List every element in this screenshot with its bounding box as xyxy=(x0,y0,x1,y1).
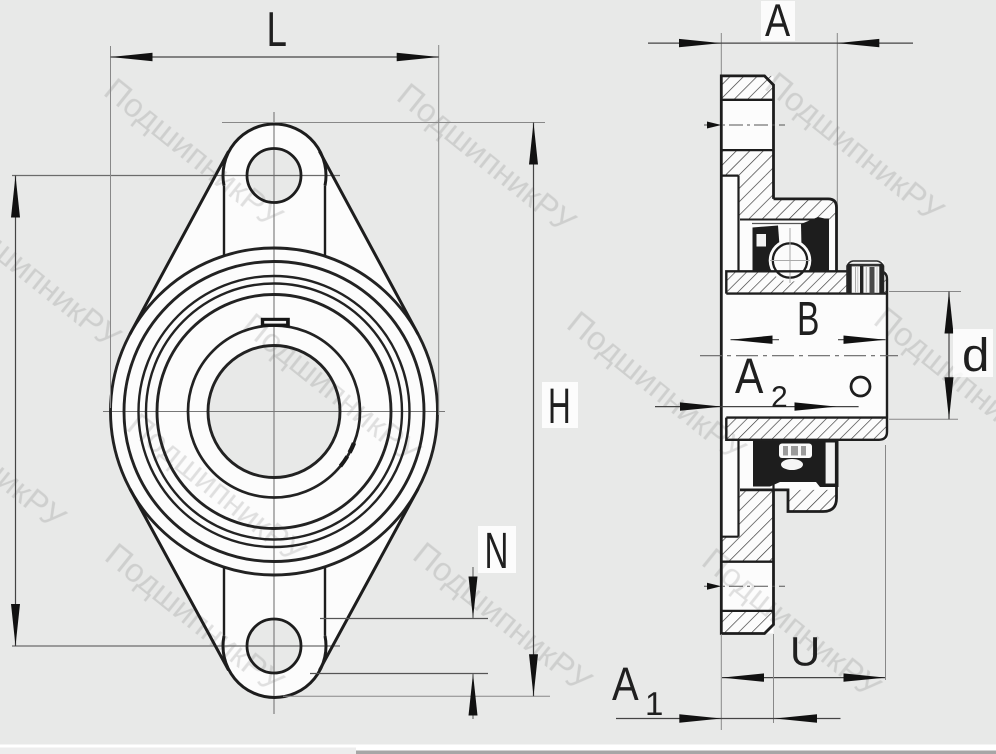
svg-text:2: 2 xyxy=(771,381,788,414)
svg-text:A: A xyxy=(612,657,639,710)
svg-text:A: A xyxy=(765,0,790,46)
svg-text:U: U xyxy=(790,629,820,675)
svg-text:d: d xyxy=(962,328,989,381)
svg-text:A: A xyxy=(735,348,764,404)
svg-text:B: B xyxy=(797,293,819,346)
svg-text:1: 1 xyxy=(645,685,663,722)
svg-text:L: L xyxy=(267,3,287,57)
svg-text:H: H xyxy=(548,378,571,434)
svg-text:N: N xyxy=(485,522,509,579)
